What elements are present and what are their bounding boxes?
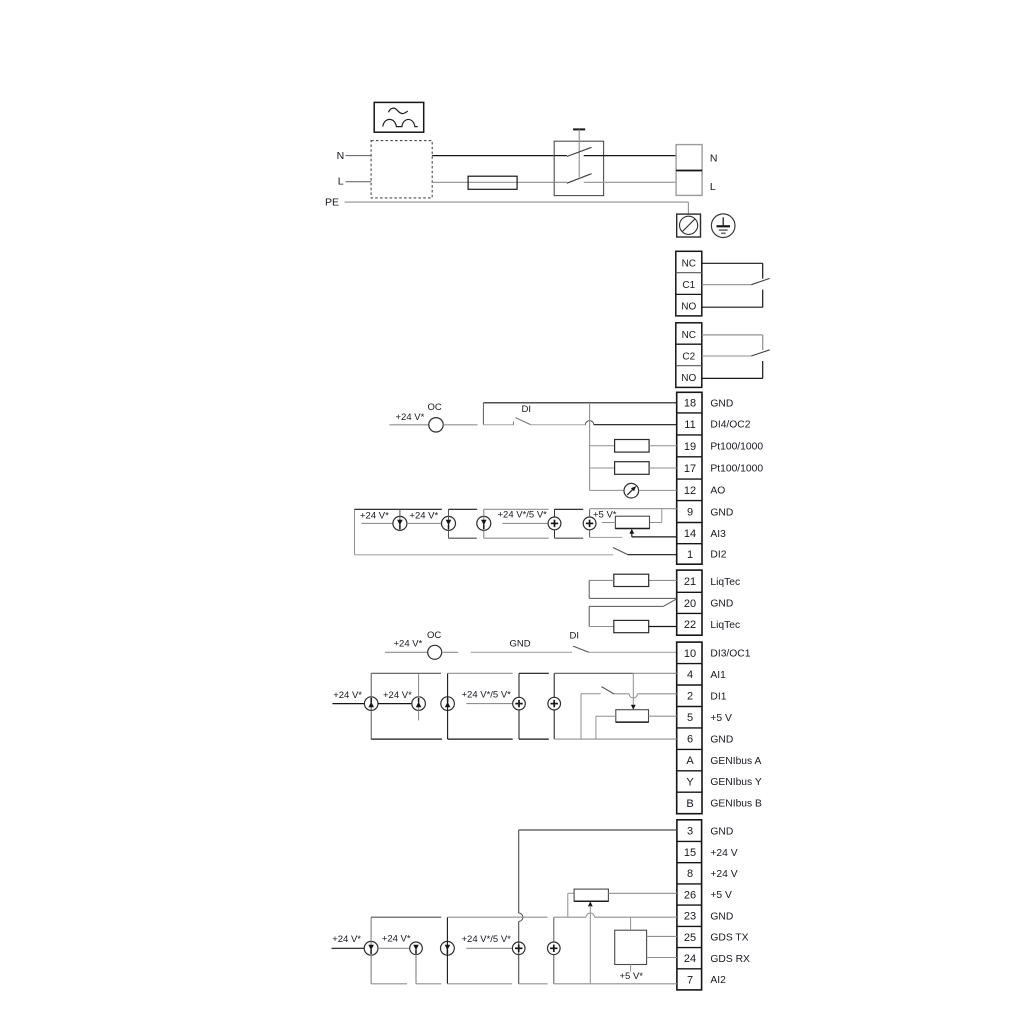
- svg-text:17: 17: [684, 463, 696, 475]
- svg-text:GDS RX: GDS RX: [710, 954, 750, 965]
- svg-text:+24 V*/5 V*: +24 V*/5 V*: [498, 510, 548, 521]
- svg-text:DI3/OC1: DI3/OC1: [710, 649, 750, 660]
- svg-text:14: 14: [684, 528, 696, 540]
- svg-text:+24 V: +24 V: [710, 869, 737, 880]
- svg-text:PE: PE: [325, 197, 339, 209]
- svg-text:N: N: [710, 152, 718, 164]
- svg-text:GND: GND: [710, 507, 733, 518]
- svg-text:GENIbus B: GENIbus B: [710, 799, 762, 810]
- svg-text:GDS TX: GDS TX: [710, 933, 748, 944]
- svg-text:A: A: [686, 755, 694, 767]
- svg-text:+24 V*: +24 V*: [394, 639, 423, 650]
- svg-text:L: L: [710, 181, 716, 193]
- svg-text:GND: GND: [510, 639, 531, 650]
- svg-text:+5 V*: +5 V*: [620, 971, 644, 982]
- svg-text:NC: NC: [682, 330, 696, 341]
- svg-text:9: 9: [687, 506, 693, 518]
- svg-text:+24 V*: +24 V*: [396, 412, 425, 423]
- svg-text:DI4/OC2: DI4/OC2: [710, 420, 750, 431]
- svg-text:21: 21: [684, 576, 696, 588]
- svg-text:NO: NO: [681, 302, 696, 313]
- svg-text:+24 V*: +24 V*: [360, 511, 389, 522]
- svg-text:+24 V: +24 V: [710, 848, 737, 859]
- svg-text:B: B: [686, 798, 693, 810]
- svg-text:3: 3: [687, 826, 693, 838]
- svg-text:15: 15: [684, 847, 696, 859]
- svg-text:LiqTec: LiqTec: [710, 620, 740, 631]
- svg-text:+24 V*/5 V*: +24 V*/5 V*: [462, 690, 512, 701]
- svg-text:GND: GND: [710, 826, 733, 837]
- svg-text:6: 6: [687, 734, 693, 746]
- svg-text:Pt100/1000: Pt100/1000: [710, 464, 763, 475]
- svg-text:+24 V*: +24 V*: [409, 511, 438, 522]
- svg-text:AO: AO: [710, 486, 725, 497]
- svg-text:10: 10: [684, 648, 696, 660]
- svg-text:22: 22: [684, 619, 696, 631]
- svg-text:AI2: AI2: [710, 975, 726, 986]
- svg-text:DI: DI: [522, 404, 532, 415]
- svg-text:19: 19: [684, 441, 696, 453]
- svg-text:18: 18: [684, 398, 696, 410]
- svg-text:GND: GND: [710, 398, 733, 409]
- svg-text:LiqTec: LiqTec: [710, 577, 740, 588]
- svg-text:+24 V*: +24 V*: [382, 934, 411, 945]
- svg-text:+5 V: +5 V: [710, 890, 732, 901]
- svg-text:AI3: AI3: [710, 529, 726, 540]
- svg-text:20: 20: [684, 598, 696, 610]
- svg-text:GENIbus A: GENIbus A: [710, 756, 761, 767]
- svg-text:+24 V*: +24 V*: [383, 690, 412, 701]
- svg-text:+24 V*/5 V*: +24 V*/5 V*: [462, 934, 512, 945]
- svg-text:5: 5: [687, 712, 693, 724]
- svg-text:4: 4: [687, 669, 693, 681]
- svg-text:24: 24: [684, 953, 696, 965]
- svg-text:+24 V*: +24 V*: [332, 934, 361, 945]
- svg-text:OC: OC: [427, 630, 441, 641]
- svg-text:8: 8: [687, 868, 693, 880]
- svg-text:DI1: DI1: [710, 691, 726, 702]
- svg-text:25: 25: [684, 932, 696, 944]
- svg-text:DI2: DI2: [710, 550, 726, 561]
- svg-text:1: 1: [687, 549, 693, 561]
- svg-text:AI1: AI1: [710, 670, 726, 681]
- svg-text:Pt100/1000: Pt100/1000: [710, 442, 763, 453]
- svg-text:DI: DI: [570, 631, 580, 642]
- svg-text:GND: GND: [710, 599, 733, 610]
- svg-text:NC: NC: [682, 258, 696, 269]
- svg-text:+5 V*: +5 V*: [593, 510, 617, 521]
- svg-text:Y: Y: [686, 776, 694, 788]
- svg-text:2: 2: [687, 691, 693, 703]
- svg-text:NO: NO: [681, 373, 696, 384]
- svg-text:OC: OC: [428, 402, 442, 413]
- svg-text:GND: GND: [710, 911, 733, 922]
- svg-text:7: 7: [687, 974, 693, 986]
- svg-text:C2: C2: [682, 351, 695, 362]
- svg-text:12: 12: [684, 485, 696, 497]
- svg-text:C1: C1: [682, 280, 695, 291]
- svg-text:+5 V: +5 V: [710, 713, 732, 724]
- svg-text:11: 11: [684, 419, 695, 431]
- svg-text:L: L: [338, 176, 344, 188]
- svg-text:+24 V*: +24 V*: [333, 690, 362, 701]
- svg-text:26: 26: [684, 889, 696, 901]
- svg-text:GENIbus Y: GENIbus Y: [710, 777, 761, 788]
- svg-text:23: 23: [684, 911, 696, 923]
- svg-text:GND: GND: [710, 734, 733, 745]
- svg-text:N: N: [337, 150, 345, 162]
